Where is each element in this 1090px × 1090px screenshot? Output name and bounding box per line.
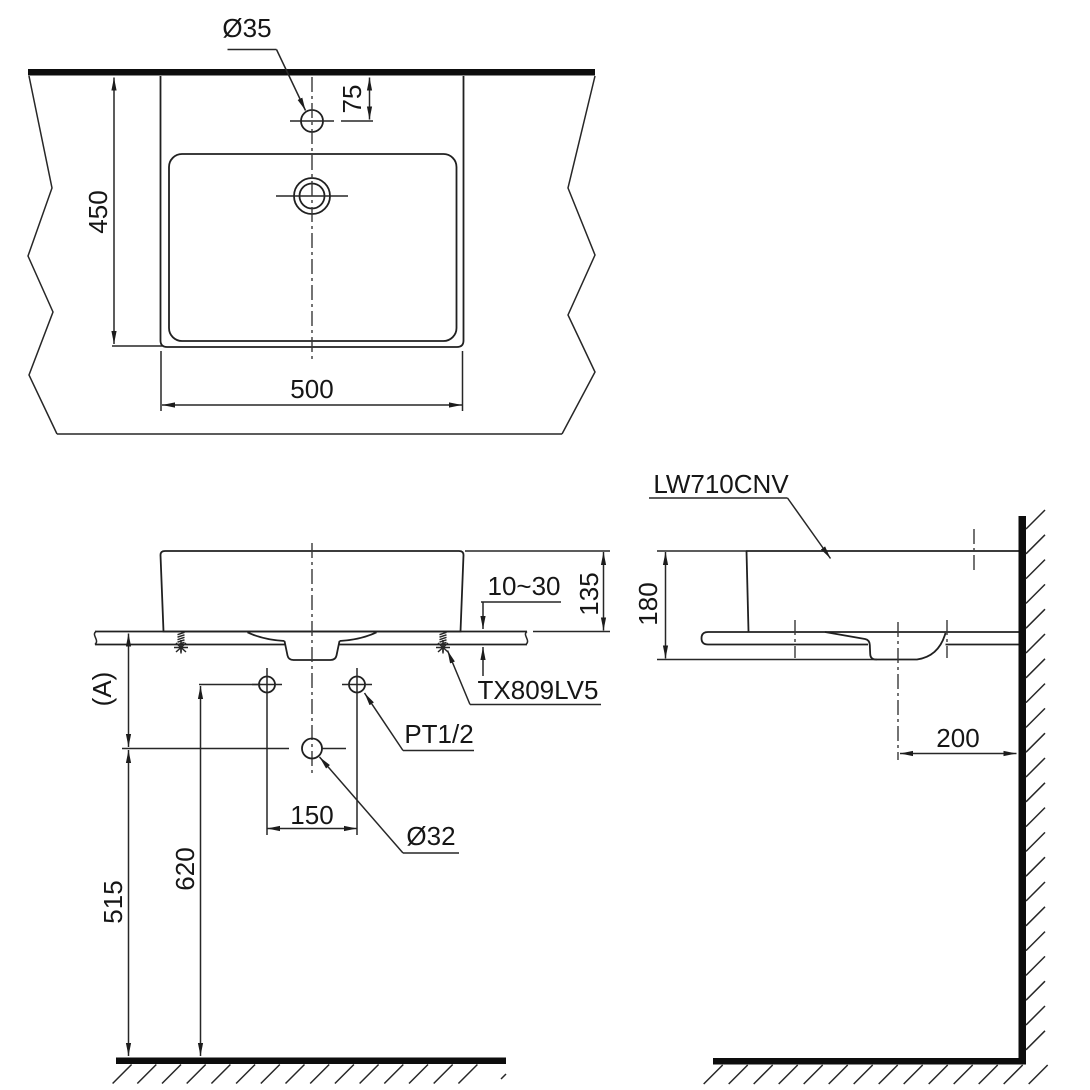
- svg-text:620: 620: [170, 847, 200, 890]
- svg-text:10~30: 10~30: [487, 571, 560, 601]
- svg-text:515: 515: [98, 880, 128, 923]
- svg-text:180: 180: [633, 582, 663, 625]
- svg-text:(A): (A): [87, 672, 117, 707]
- svg-text:200: 200: [936, 723, 979, 753]
- svg-text:LW710CNV: LW710CNV: [653, 469, 789, 499]
- svg-text:PT1/2: PT1/2: [404, 719, 473, 749]
- svg-text:Ø32: Ø32: [406, 821, 455, 851]
- svg-text:500: 500: [290, 374, 333, 404]
- svg-text:75: 75: [337, 85, 367, 114]
- svg-text:TX809LV5: TX809LV5: [478, 675, 599, 705]
- svg-text:150: 150: [290, 800, 333, 830]
- svg-text:Ø35: Ø35: [222, 13, 271, 43]
- svg-text:450: 450: [83, 190, 113, 233]
- svg-text:135: 135: [574, 572, 604, 615]
